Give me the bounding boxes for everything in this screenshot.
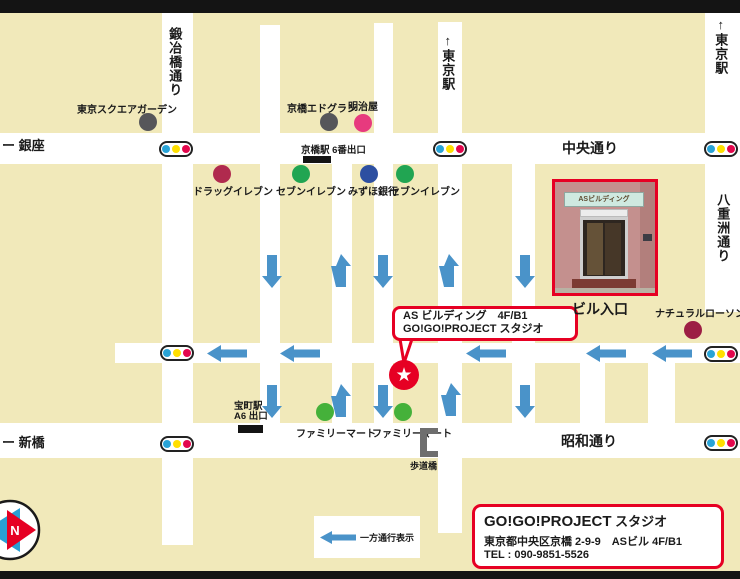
traffic-light-lamp <box>717 145 725 153</box>
star-glyph: ★ <box>395 366 412 385</box>
traffic-light-lamp <box>707 439 715 447</box>
poi-label-meijiya: 明治屋 <box>348 98 378 113</box>
studio-address: 東京都中央区京橋 2-9-9 ASビル 4F/B1 <box>484 533 712 549</box>
traffic-light-lamp <box>173 440 181 448</box>
street-label-showa-dori: 昭和通り <box>561 434 617 449</box>
callout-line-building: AS ビルディング 4F/B1 <box>403 310 575 323</box>
studio-name-bold: GO!GO!PROJECT <box>484 513 612 530</box>
traffic-light-lamp <box>182 145 190 153</box>
exit-marker-takaracho-exit-a6 <box>238 425 263 433</box>
one-way-arrow-up-icon <box>441 383 461 416</box>
street-label-tokyo-station-mid: ↑東京駅 <box>440 33 454 91</box>
poi-label-natural-lawson: ナチュラルローソン <box>655 305 740 320</box>
poi-label-seven-eleven-2: セブンイレブン <box>390 183 460 198</box>
poi-dot-mizuho-bank <box>360 165 378 183</box>
compass-north-label: N <box>10 523 19 538</box>
street-label-chuo-dori: 中央通り <box>562 141 618 156</box>
traffic-light-icon <box>704 346 738 362</box>
studio-location-star-icon: ★ <box>389 360 419 390</box>
poi-label-tokyo-square-garden: 東京スクエアガーデン <box>77 101 177 116</box>
poi-label-kyobashi-edogrand: 京橋エドグラン <box>287 100 357 115</box>
traffic-light-lamp <box>727 350 735 358</box>
photo-nameplate <box>643 234 652 241</box>
one-way-arrow-down-icon <box>373 255 393 288</box>
one-way-arrow-left-icon <box>207 345 247 362</box>
map-frame-bar <box>0 0 740 13</box>
pedestrian-bridge-label: 歩道橋 <box>410 459 437 472</box>
traffic-light-icon <box>160 436 194 452</box>
traffic-light-lamp <box>727 439 735 447</box>
photo-pavement <box>555 288 655 293</box>
traffic-light-lamp <box>717 350 725 358</box>
pedestrian-bridge-icon <box>420 428 438 457</box>
traffic-light-icon <box>704 141 738 157</box>
poi-label-family-mart-2: ファミリーマート <box>372 425 452 440</box>
traffic-light-lamp <box>183 349 191 357</box>
studio-callout-bubble: AS ビルディング 4F/B1 GO!GO!PROJECT スタジオ <box>392 306 578 341</box>
traffic-light-lamp <box>707 145 715 153</box>
studio-info-box: GO!GO!PROJECT スタジオ 東京都中央区京橋 2-9-9 ASビル 4… <box>472 504 724 569</box>
building-entrance-photo: ASビルディング <box>552 179 658 296</box>
studio-name: GO!GO!PROJECT スタジオ <box>484 511 712 530</box>
one-way-arrow-down-icon <box>262 385 282 418</box>
building-sign: ASビルディング <box>564 192 644 207</box>
one-way-arrow-up-icon <box>439 254 459 287</box>
one-way-arrow-left-icon <box>280 345 320 362</box>
callout-line-studio: GO!GO!PROJECT スタジオ <box>403 323 575 336</box>
photo-entrance-door <box>580 217 628 279</box>
street-label-ginza: ー 銀座 <box>2 139 45 153</box>
exit-marker-kyobashi-exit-6 <box>303 156 331 163</box>
street-label-kajibashi-dori: 鍛冶橋通り <box>167 27 181 97</box>
poi-dot-seven-eleven-2 <box>396 165 414 183</box>
one-way-arrow-left-icon <box>586 345 626 362</box>
poi-dot-drug-eleven <box>213 165 231 183</box>
one-way-arrow-up-icon <box>331 254 351 287</box>
street-label-yaesu-dori: 八重洲通り <box>715 193 729 263</box>
one-way-arrow-down-icon <box>373 385 393 418</box>
traffic-light-lamp <box>446 145 454 153</box>
studio-phone: TEL : 090-9851-5526 <box>484 549 712 561</box>
poi-dot-kyobashi-edogrand <box>320 113 338 131</box>
photo-transom-light <box>580 209 628 217</box>
poi-dot-natural-lawson <box>684 321 702 339</box>
door-pane-right <box>605 223 621 275</box>
traffic-light-lamp <box>173 349 181 357</box>
photo-entrance-step <box>572 279 636 288</box>
access-map: 鍛冶橋通り↑東京駅↑東京駅ー 銀座中央通り八重洲通りー 新橋昭和通り東京スクエア… <box>0 0 740 579</box>
street <box>648 363 675 458</box>
poi-label-family-mart-1: ファミリーマート <box>296 425 376 440</box>
one-way-arrow-left-icon <box>466 345 506 362</box>
traffic-light-lamp <box>162 145 170 153</box>
traffic-light-lamp <box>456 145 464 153</box>
poi-dot-family-mart-2 <box>394 403 412 421</box>
traffic-light-lamp <box>707 350 715 358</box>
street-label-shimbashi: ー 新橋 <box>2 436 45 450</box>
one-way-legend: 一方通行表示 <box>314 516 420 558</box>
traffic-light-lamp <box>163 349 171 357</box>
traffic-light-lamp <box>436 145 444 153</box>
traffic-light-icon <box>159 141 193 157</box>
traffic-light-icon <box>160 345 194 361</box>
one-way-arrow-up-icon <box>331 384 351 417</box>
map-frame-bar <box>0 571 740 579</box>
one-way-arrow-down-icon <box>262 255 282 288</box>
traffic-light-lamp <box>172 145 180 153</box>
building-entrance-caption: ビル入口 <box>572 299 628 319</box>
one-way-legend-label: 一方通行表示 <box>360 531 414 544</box>
one-way-arrow-down-icon <box>515 255 535 288</box>
traffic-light-lamp <box>717 439 725 447</box>
door-pane-left <box>587 223 603 275</box>
one-way-arrow-down-icon <box>515 385 535 418</box>
exit-label-kyobashi-exit-6: 京橋駅 6番出口 <box>301 146 366 156</box>
poi-label-seven-eleven-1: セブンイレブン <box>276 183 346 198</box>
traffic-light-lamp <box>183 440 191 448</box>
studio-name-suffix: スタジオ <box>612 514 668 529</box>
one-way-arrow-icon <box>320 531 356 544</box>
exit-label-line: 京橋駅 6番出口 <box>301 146 366 156</box>
one-way-arrow-left-icon <box>652 345 692 362</box>
poi-dot-seven-eleven-1 <box>292 165 310 183</box>
poi-label-drug-eleven: ドラッグイレブン <box>193 183 273 198</box>
traffic-light-icon <box>704 435 738 451</box>
traffic-light-icon <box>433 141 467 157</box>
traffic-light-lamp <box>163 440 171 448</box>
traffic-light-lamp <box>727 145 735 153</box>
street-label-tokyo-station-right: ↑東京駅 <box>713 17 727 75</box>
poi-dot-meijiya <box>354 114 372 132</box>
street <box>0 133 740 164</box>
compass-icon: N <box>0 498 41 562</box>
